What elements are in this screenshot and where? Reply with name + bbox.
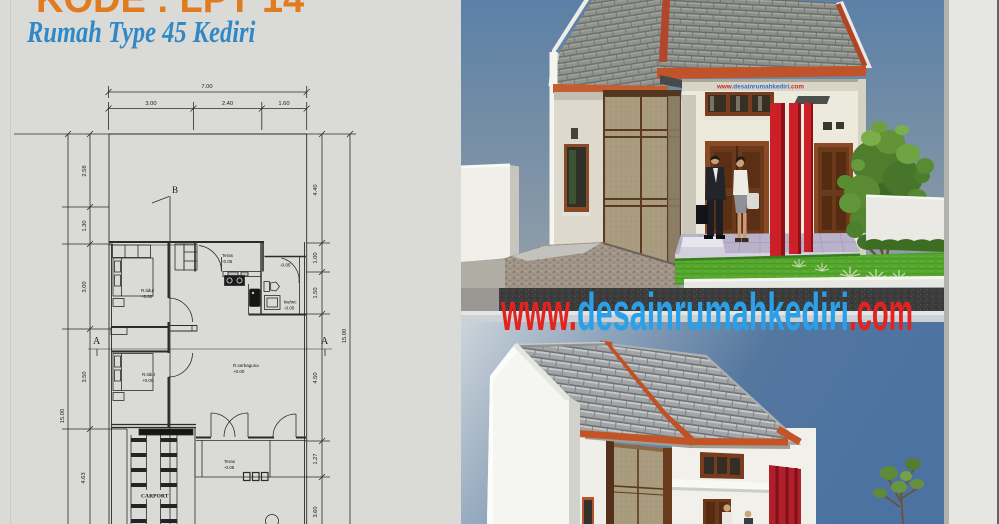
svg-text:www.: www. — [500, 283, 577, 342]
svg-text:7.00: 7.00 — [201, 84, 212, 90]
svg-text:R.tidur: R.tidur — [141, 288, 155, 293]
svg-text:+0.00: +0.00 — [142, 378, 154, 383]
svg-text:1.27: 1.27 — [313, 453, 319, 464]
svg-text:B: B — [172, 185, 178, 195]
svg-text:-0.05: -0.05 — [284, 306, 295, 311]
svg-text:-0.05: -0.05 — [222, 259, 233, 264]
svg-text:4.63: 4.63 — [81, 472, 87, 483]
svg-text:R.tidur: R.tidur — [142, 372, 156, 377]
svg-text:+0.00: +0.00 — [141, 294, 153, 299]
svg-text:Teras: Teras — [224, 459, 236, 464]
svg-text:+0.00: +0.00 — [233, 369, 245, 374]
svg-text:www.desainrumahkediri.com: www.desainrumahkediri.com — [716, 84, 804, 91]
svg-text:R.serbaguna: R.serbaguna — [233, 363, 259, 368]
svg-text:CARPORT: CARPORT — [141, 494, 169, 500]
svg-text:2.58: 2.58 — [82, 165, 88, 176]
svg-text:2.40: 2.40 — [222, 101, 233, 107]
svg-text:A: A — [93, 336, 101, 347]
svg-text:A: A — [321, 336, 329, 347]
svg-text:1.60: 1.60 — [278, 101, 289, 107]
svg-text:-0.05: -0.05 — [224, 465, 235, 470]
svg-text:4.50: 4.50 — [313, 372, 319, 383]
svg-text:4.40: 4.40 — [313, 184, 319, 195]
svg-text:-0.05: -0.05 — [280, 263, 291, 268]
svg-text:Teras: Teras — [222, 253, 234, 258]
svg-text:1.00: 1.00 — [313, 252, 319, 263]
svg-text:3.60: 3.60 — [313, 506, 319, 517]
svg-text:3.00: 3.00 — [82, 281, 88, 292]
svg-text:15.00: 15.00 — [60, 409, 66, 424]
svg-text:15.00: 15.00 — [342, 329, 348, 344]
svg-text:desainrumahkediri: desainrumahkediri — [577, 283, 849, 342]
svg-text:kw/wc: kw/wc — [284, 300, 297, 305]
svg-text:1.50: 1.50 — [313, 287, 319, 298]
svg-text:3.50: 3.50 — [82, 371, 88, 382]
svg-text:3.00: 3.00 — [145, 101, 156, 107]
svg-text:.com: .com — [849, 283, 913, 342]
svg-text:1.30: 1.30 — [82, 220, 88, 231]
